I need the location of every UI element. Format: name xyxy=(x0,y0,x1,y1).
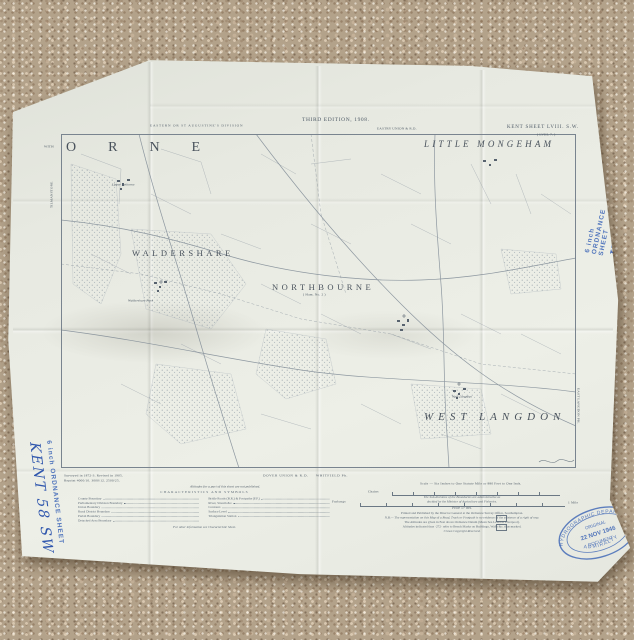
legend-leader xyxy=(113,521,199,522)
legend-leader xyxy=(222,508,329,509)
parish-orne: ORNE xyxy=(66,140,232,156)
sheet-subnumber: ( LVIII. 7. ) xyxy=(537,133,555,136)
legend-leader xyxy=(103,499,199,500)
legend-footnote: For other information see Characteristic… xyxy=(78,526,331,529)
imprint-line: decided by the Minister of Agriculture a… xyxy=(352,500,572,503)
legend-label: Surface Level xyxy=(208,510,226,513)
legend-leader xyxy=(102,516,199,517)
parish-northbourne: NORTHBOURNE xyxy=(272,282,374,292)
legend-title: CHARACTERISTICS AND SYMBOLS xyxy=(78,490,331,494)
sheet-number: KENT SHEET LVIII. S.W. xyxy=(507,125,579,130)
furlongs-label: Furlongs xyxy=(332,500,346,503)
legend-label: Triangulation Station xyxy=(208,515,236,518)
legend-leader xyxy=(124,503,199,504)
union-title: EASTRY UNION & R.D. xyxy=(377,127,417,130)
legend-label: Parliamentary Division Boundary xyxy=(78,502,123,505)
margin-left-vertical: TILMANSTONE xyxy=(50,181,53,208)
division-title: EASTERN OR ST AUGUSTINE'S DIVISION xyxy=(150,124,243,127)
parish-little-mongeham: LITTLE MONGEHAM xyxy=(424,139,554,149)
chains-label: Chains xyxy=(368,490,379,493)
paper-fold-crease xyxy=(150,103,600,110)
ordnance-sheet-stamp-text: 6 inch ORDNANCE SHEET xyxy=(584,203,615,257)
edition-title: THIRD EDITION, 1908. xyxy=(302,117,370,123)
survey-note-1: Surveyed in 1872-3. Revised in 1905. xyxy=(64,474,123,477)
annotation-left: 6 inch ORDNANCE SHEET KENT 58 SW xyxy=(26,440,66,555)
scale-caption: Scale — Six Inches to One Statute Mile o… xyxy=(420,482,521,485)
legend-leader xyxy=(261,499,329,500)
parish-west-langdon: WEST LANGDON xyxy=(424,411,565,423)
legend-label: County Boundary xyxy=(78,497,102,500)
legend-leader xyxy=(102,508,199,509)
legend-label: Rural District Boundary xyxy=(78,510,110,513)
map-sheet-paper: EASTERN OR ST AUGUSTINE'S DIVISION THIRD… xyxy=(0,0,634,640)
legend-row: Detached Area Boundary xyxy=(78,518,201,522)
legend-label: Bridle Roads (B.R.) & Footpaths (F.P.) xyxy=(208,497,259,500)
legend-row: Triangulation Station xyxy=(208,514,331,518)
dover-union-label: DOVER UNION & R.D. xyxy=(263,474,309,477)
village-upper-eythorne: Upper Eythorne xyxy=(112,183,135,186)
annotation-right: 6 inch ORDNANCE SHEET KENT 58 SW xyxy=(584,203,634,267)
parish-northbourne-sub: ( Ham. No. 2 ) xyxy=(303,293,326,296)
parish-waldershare: WALDERSHARE xyxy=(132,248,234,258)
margin-right-vertical: EAST LANGDON PH. xyxy=(577,388,580,424)
legend-label: River, Stream &c. xyxy=(208,502,232,505)
handwritten-sheet-number: KENT 58 SW xyxy=(608,205,634,269)
legend-leader xyxy=(234,503,329,504)
legend-leader xyxy=(238,516,329,517)
altitude-note: Altitudes for a part of this sheet are n… xyxy=(190,485,260,488)
legend-label: Union Boundary xyxy=(78,506,100,509)
map-sheet-wrapper: EASTERN OR ST AUGUSTINE'S DIVISION THIRD… xyxy=(0,0,634,640)
legend-characteristics: CHARACTERISTICS AND SYMBOLS County Bound… xyxy=(78,490,331,529)
legend-label: Parish Boundary xyxy=(78,515,100,518)
legend-label: Detached Area Boundary xyxy=(78,519,111,522)
survey-note-2: Reprint 4000/10. 3000/12. 2500/25. xyxy=(64,479,120,482)
handwritten-sheet-number: KENT 58 SW xyxy=(26,442,56,554)
legend-leader xyxy=(228,512,329,513)
admiralty-oval-stamp: HYDROGRAPHIC DEPARTMENT ORIGINAL 22 NOV … xyxy=(527,472,634,595)
legend-leader xyxy=(112,512,199,513)
village-waldershare-park: Waldershare Park xyxy=(128,299,153,302)
whitfield-label: WHITFIELD Ph. xyxy=(316,474,348,477)
margin-with-label: WITH xyxy=(44,145,54,148)
legend-label: Contours xyxy=(208,506,220,509)
village-west-langdon: West Langdon xyxy=(452,395,472,398)
imprint-line: The Sub-divisions of the Boundaries are … xyxy=(352,496,572,499)
